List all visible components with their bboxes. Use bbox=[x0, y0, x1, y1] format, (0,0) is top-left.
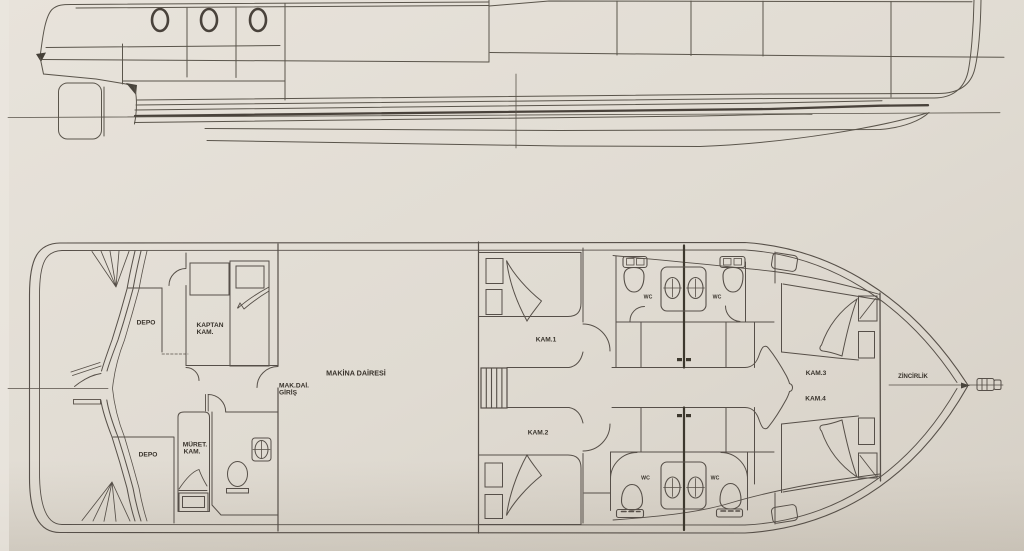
svg-text:MAKİNA DAİRESİ: MAKİNA DAİRESİ bbox=[326, 369, 386, 378]
svg-text:WC: WC bbox=[641, 476, 650, 482]
svg-text:GİRİŞ: GİRİŞ bbox=[279, 389, 298, 397]
svg-text:KAM.4: KAM.4 bbox=[805, 396, 826, 403]
svg-text:KAM.1: KAM.1 bbox=[536, 337, 557, 344]
svg-text:ZİNCİRLİK: ZİNCİRLİK bbox=[898, 373, 928, 380]
svg-text:WC: WC bbox=[713, 295, 722, 301]
svg-text:MAK.DAİ.: MAK.DAİ. bbox=[279, 382, 309, 390]
svg-text:DEPO: DEPO bbox=[137, 320, 156, 327]
svg-text:WC: WC bbox=[644, 295, 653, 301]
svg-text:KAM.3: KAM.3 bbox=[806, 370, 827, 377]
svg-text:KAM.: KAM. bbox=[197, 329, 214, 336]
svg-text:WC: WC bbox=[711, 476, 720, 482]
svg-text:KAM.: KAM. bbox=[184, 449, 201, 456]
svg-text:MÜRET.: MÜRET. bbox=[183, 440, 208, 449]
svg-text:DEPO: DEPO bbox=[139, 452, 158, 459]
svg-text:KAM.2: KAM.2 bbox=[528, 430, 549, 437]
svg-text:KAPTAN: KAPTAN bbox=[197, 322, 224, 329]
